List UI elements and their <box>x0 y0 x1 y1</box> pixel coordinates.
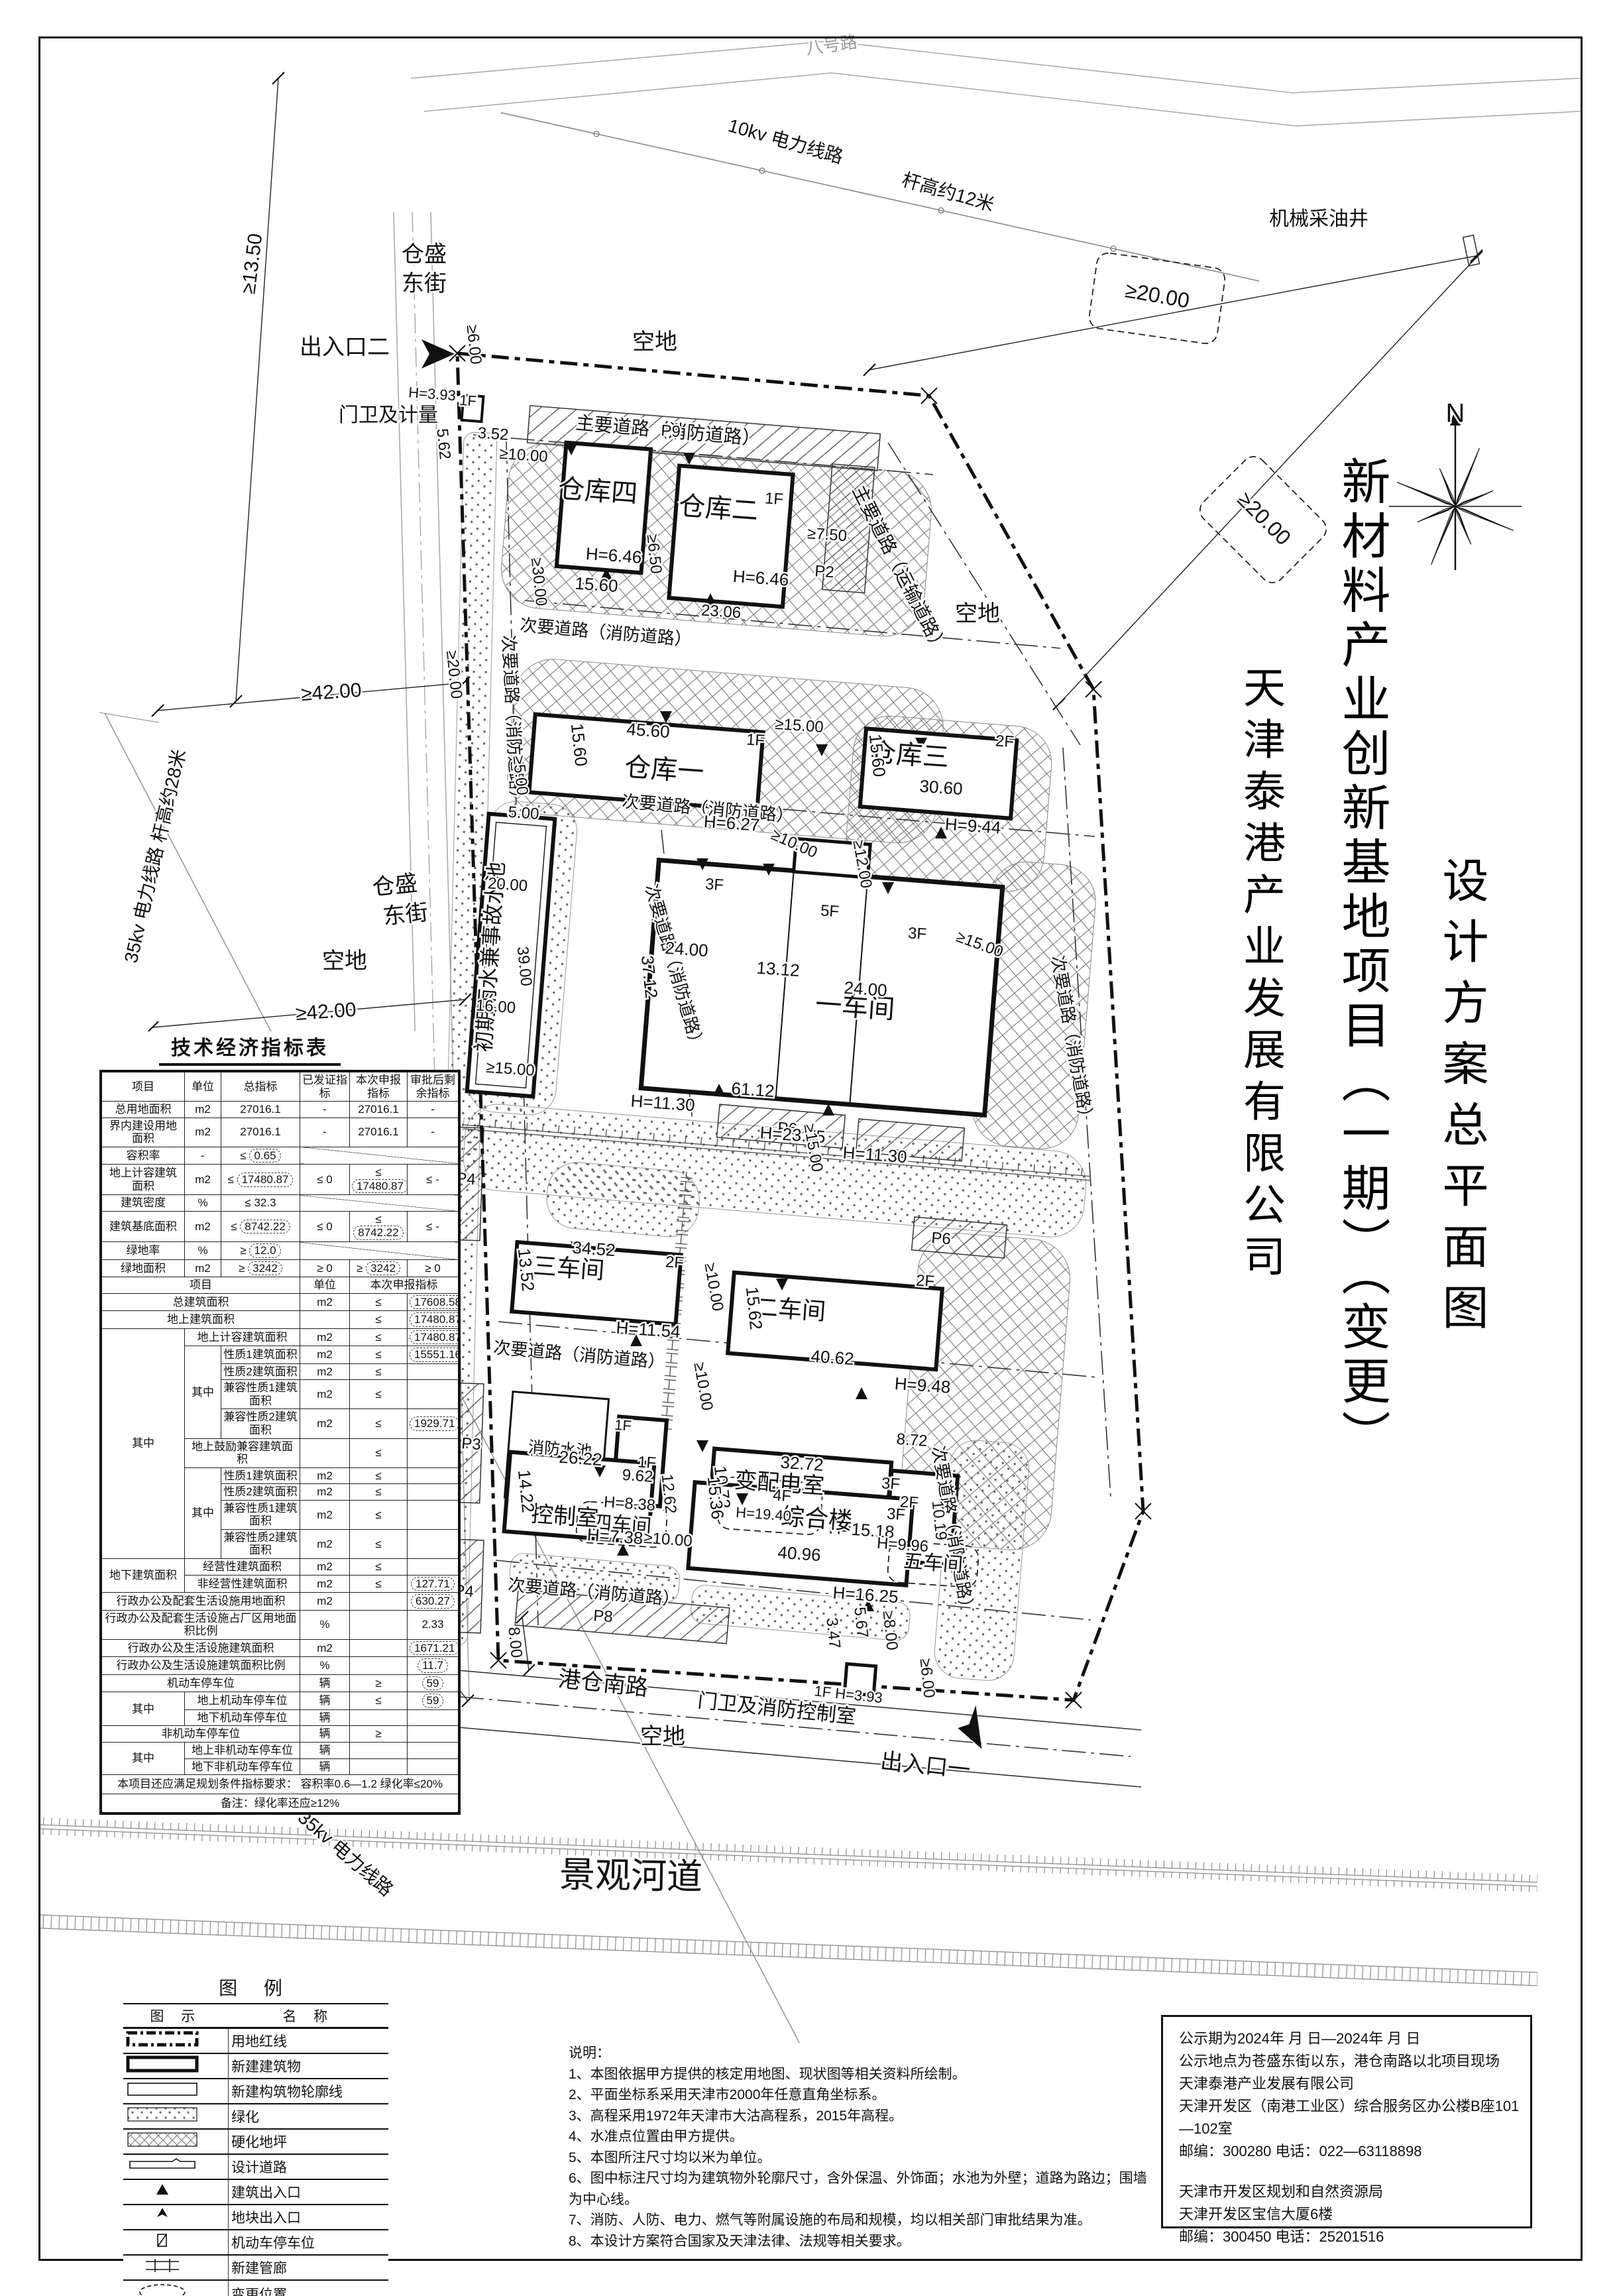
notes-list: 1、本图依据甲方提供的核定用地图、现状图等相关资料所绘制。2、平面坐标系采用天津… <box>569 2064 1152 2252</box>
col-header: 已发证指标 <box>300 1071 350 1102</box>
greenery-icon <box>128 2108 197 2121</box>
table-row: 地下建筑面积经营性建筑面积m2≤ <box>101 1558 459 1575</box>
legend-label: 新建构筑物轮廓线 <box>229 2079 389 2104</box>
legend-panel: 图 例 图 示名 称用地红线新建建筑物新建构筑物轮廓线绿化硬化地坪设计道路建筑出… <box>123 1974 388 2296</box>
publicity-line: 天津开发区宝信大厦6楼 <box>1179 2203 1524 2226</box>
table-row: 其中地上机动车停车位辆≤59 <box>101 1692 459 1710</box>
col-header: 审批后剩余指标 <box>408 1071 460 1102</box>
structure-outline-icon <box>128 2083 197 2095</box>
table-footer-row: 备注：绿化率还应≥12% <box>101 1794 459 1813</box>
site-entrance-icon <box>157 2208 168 2217</box>
new-building-icon <box>128 2057 197 2071</box>
notes-title: 说明： <box>569 2043 1152 2064</box>
note-item: 2、平面坐标系采用天津市2000年任意直角坐标系。 <box>569 2085 1152 2106</box>
legend-label: 绿化 <box>229 2104 389 2129</box>
legend-label: 建筑出入口 <box>229 2179 389 2205</box>
legend-title: 图 例 <box>123 1974 388 2000</box>
notes-panel: 说明： 1、本图依据甲方提供的核定用地图、现状图等相关资料所绘制。2、平面坐标系… <box>569 2043 1152 2252</box>
publicity-line: 邮编：300280 电话：022—63118898 <box>1179 2140 1524 2163</box>
indicator-table-title: 技术经济指标表 <box>159 1031 341 1066</box>
change-location-icon <box>140 2285 185 2296</box>
legend-label: 设计道路 <box>229 2154 389 2179</box>
legend-row: 地块出入口 <box>123 2205 388 2230</box>
col-header: 项目 <box>101 1071 185 1102</box>
legend-label: 机动车停车位 <box>229 2230 389 2255</box>
publicity-line: 天津开发区（南港工业区）综合服务区办公楼B座101—102室 <box>1179 2095 1524 2140</box>
indicator-table-panel: 技术经济指标表 项目单位总指标已发证指标本次申报指标审批后剩余指标总用地面积m2… <box>99 1031 428 1815</box>
publicity-line: 邮编：300450 电话：25201516 <box>1179 2226 1524 2248</box>
table-row: 绿地面积m2≥ 3242≥ 0≥ 3242≥ 0 <box>101 1259 459 1277</box>
project-title: 新材料产业创新基地项目（一期）（变更） <box>1327 456 1398 1782</box>
table-row: 绿地率%≥ 12.0 <box>101 1242 459 1260</box>
table-row: 非机动车停车位辆≥ <box>101 1726 459 1743</box>
table-row: 行政办公及生活设施建筑面积m21671.21 <box>101 1639 459 1657</box>
drawing-title: 设计方案总平面图 <box>1429 856 1496 1387</box>
note-item: 1、本图依据甲方提供的核定用地图、现状图等相关资料所绘制。 <box>569 2064 1152 2085</box>
legend-label: 新建管廊 <box>229 2255 389 2280</box>
table-head-row: 项目单位总指标已发证指标本次申报指标审批后剩余指标 <box>101 1071 459 1102</box>
publicity-line: 天津市开发区规划和自然资源局 <box>1179 2181 1524 2203</box>
table-row: 行政办公及配套生活设施占厂区用地面积比例%2.33 <box>101 1610 459 1639</box>
table-row: 机动车停车位辆≥59 <box>101 1674 459 1692</box>
legend-row: 用地红线 <box>123 2028 388 2054</box>
legend-label: 变更位置 <box>229 2280 389 2296</box>
table-footer-row: 本项目还应满足规划条件指标要求： 容积率0.6—1.2 绿化率≤20% <box>101 1775 459 1794</box>
drawing-sheet: 八号路10kv 电力线路杆高约12米机械采油井仓盛东街仓盛东街空地空地空地空地3… <box>0 0 1617 2296</box>
table-row: 建筑基底面积m2≤ 8742.22≤ 0≤ 8742.22≤ - <box>101 1211 459 1241</box>
table-row: 行政办公及配套生活设施用地面积m2630.27 <box>101 1593 459 1611</box>
note-item: 7、消防、人防、电力、燃气等附属设施的布局和规模，均以相关部门审批结果为准。 <box>569 2210 1152 2231</box>
legend-row: 绿化 <box>123 2104 388 2129</box>
table-row: 总用地面积m227016.1-27016.1- <box>101 1102 459 1118</box>
note-item: 5、本图所注尺寸均以米为单位。 <box>569 2148 1152 2169</box>
table-row: 总建筑面积m2≤17608.58 <box>101 1293 459 1311</box>
table-row: 地上计容建筑面积m2≤ 17480.87≤ 0≤ 17480.87≤ - <box>101 1165 459 1195</box>
note-item: 4、水准点位置由甲方提供。 <box>569 2126 1152 2148</box>
legend-row: 新建构筑物轮廓线 <box>123 2079 388 2104</box>
legend-row: 硬化地坪 <box>123 2129 388 2154</box>
publicity-line <box>1179 2163 1524 2181</box>
legend-row: 设计道路 <box>123 2154 388 2179</box>
table-row: 界内建设用地面积m227016.1-27016.1- <box>101 1118 459 1147</box>
col-header: 总指标 <box>221 1071 300 1102</box>
table-row: 其中地上非机动车停车位辆 <box>101 1742 459 1758</box>
publicity-line: 公示期为2024年 月 日—2024年 月 日 <box>1179 2028 1524 2050</box>
red-line-icon <box>128 2033 197 2045</box>
legend-label: 用地红线 <box>229 2028 389 2054</box>
legend-label: 地块出入口 <box>229 2205 389 2230</box>
legend-row: 建筑出入口 <box>123 2179 388 2205</box>
paving-icon <box>128 2133 197 2146</box>
table-row: 容积率-≤ 0.65 <box>101 1147 459 1165</box>
building-entrance-icon <box>156 2184 168 2195</box>
publicity-line: 公示地点为苍盛东街以东，港仓南路以北项目现场 <box>1179 2050 1524 2073</box>
table-row: 行政办公及生活设施建筑面积比例%11.7 <box>101 1657 459 1675</box>
col-header: 本次申报指标 <box>350 1071 408 1102</box>
table-row: 地上建筑面积≤17480.87 <box>101 1311 459 1329</box>
legend-row: 新建建筑物 <box>123 2053 388 2079</box>
col-header: 单位 <box>185 1071 221 1102</box>
legend-row: 机动车停车位 <box>123 2230 388 2255</box>
note-item: 3、高程采用1972年天津市大沽高程系，2015年高程。 <box>569 2106 1152 2127</box>
company-name: 天津泰港产业发展有限公司 <box>1230 665 1291 1593</box>
legend-row: 新建管廊 <box>123 2255 388 2280</box>
table-row: 建筑密度%≤ 32.3 <box>101 1195 459 1212</box>
note-item: 6、图中标注尺寸均为建筑物外轮廓尺寸，含外保温、外饰面；水池为外壁；道路为路边；… <box>569 2168 1152 2210</box>
legend-head-row: 图 示名 称 <box>123 2004 388 2028</box>
note-item: 8、本设计方案符合国家及天津法律、法规等相关要求。 <box>569 2231 1152 2252</box>
legend-label: 硬化地坪 <box>229 2129 389 2154</box>
publicity-panel: 公示期为2024年 月 日—2024年 月 日公示地点为苍盛东街以东，港仓南路以… <box>1161 2015 1532 2228</box>
mid-head-row: 项目单位本次申报指标 <box>101 1277 459 1294</box>
indicator-table: 项目单位总指标已发证指标本次申报指标审批后剩余指标总用地面积m227016.1-… <box>99 1070 461 1815</box>
publicity-line: 天津泰港产业发展有限公司 <box>1179 2073 1524 2095</box>
parking-space-icon <box>158 2234 166 2246</box>
table-row: 其中地上计容建筑面积m2≤17480.87 <box>101 1328 459 1346</box>
legend-label: 新建建筑物 <box>229 2053 389 2079</box>
legend-table: 图 示名 称用地红线新建建筑物新建构筑物轮廓线绿化硬化地坪设计道路建筑出入口地块… <box>123 2003 388 2296</box>
design-road-icon <box>130 2159 195 2168</box>
legend-row: 变更位置 <box>123 2280 388 2296</box>
